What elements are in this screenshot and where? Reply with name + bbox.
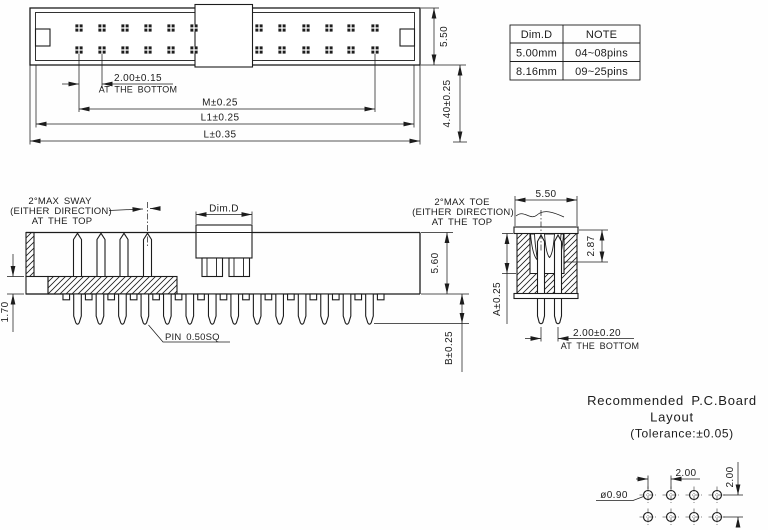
end-width-extension-lines: [515, 196, 577, 226]
side-view: Dim.D 2°MAX SWAY (EITHER DIRECTION) AT T…: [0, 196, 469, 372]
solder-tail: [186, 294, 194, 324]
top-view: 2.00±0.15 AT THE BOTTOM M±0.25 L1±0.25 L…: [30, 5, 467, 145]
solder-tail: [119, 294, 127, 324]
pin-note: PIN 0.50SQ: [165, 332, 220, 343]
side-view-key-feet: [202, 258, 250, 277]
end-pitch-extension-lines: [541, 327, 558, 342]
side-view-left-end-block: [26, 277, 48, 295]
side-view-left-wall-section: [26, 233, 34, 277]
end-view-top-cap: [514, 227, 578, 234]
side-view-top-pins: [74, 233, 152, 276]
top-view-left-slot: [36, 29, 51, 46]
dim-body-width-top: 5.50: [439, 26, 450, 47]
end-view-bottom-lip: [514, 294, 578, 299]
side-view-center-key: [196, 225, 252, 258]
pin-top: [97, 233, 105, 276]
standoff-nub: [108, 294, 115, 300]
dim-pcb-pitch-x: 2.00: [675, 468, 696, 479]
standoff-nub: [85, 294, 92, 300]
dim-l1: L1±0.25: [201, 113, 240, 124]
standoff-nub: [377, 294, 384, 300]
base-thickness-extension-lines: [7, 277, 24, 295]
dim-pin-pitch-top: 2.00±0.15: [114, 73, 162, 84]
solder-tail: [164, 294, 172, 324]
dim-end-pitch: 2.00±0.20: [573, 328, 621, 339]
end-view-pin: [555, 235, 562, 324]
dim-body-height: 5.60: [430, 252, 441, 273]
solder-tail: [141, 294, 149, 324]
dim-end-width: 5.50: [535, 189, 556, 200]
pcb-layout: Recommended P.C.Board Layout (Tolerance:…: [587, 393, 757, 526]
dim-pin-pitch-top-note: AT THE BOTTOM: [99, 85, 177, 95]
side-view-base-section: [48, 277, 177, 295]
pcb-pitch-y-extension-lines: [723, 495, 743, 517]
dim-287: 2.87: [586, 235, 597, 256]
spec-table-cell: 8.16mm: [516, 66, 557, 78]
solder-tail: [321, 294, 329, 324]
standoff-nub: [288, 294, 295, 300]
solder-tail: [96, 294, 104, 324]
standoff-nub: [175, 294, 182, 300]
standoff-nub: [310, 294, 317, 300]
pin-top: [74, 233, 82, 276]
dim-pcb-pitch-y: 2.00: [725, 466, 736, 487]
standoff-nub: [220, 294, 227, 300]
solder-tail: [253, 294, 261, 324]
side-view-standoff-nubs: [63, 294, 384, 300]
standoff-nub: [198, 294, 205, 300]
solder-tail: [231, 294, 239, 324]
dim-end-pitch-note: AT THE BOTTOM: [561, 341, 639, 351]
standoff-nub: [265, 294, 272, 300]
side-height-extension-lines: [374, 233, 469, 324]
drawing-canvas: 2.00±0.15 AT THE BOTTOM M±0.25 L1±0.25 L…: [0, 0, 768, 530]
standoff-nub: [355, 294, 362, 300]
dim-a-extension-lines: [502, 234, 516, 274]
standoff-nub: [153, 294, 160, 300]
standoff-nub: [332, 294, 339, 300]
sway-label-line3: AT THE TOP: [32, 216, 93, 227]
spec-table-header-dimd: Dim.D: [521, 29, 553, 41]
top-view-right-slot: [400, 29, 415, 46]
dim-a: A±0.25: [492, 282, 503, 316]
solder-tail: [208, 294, 216, 324]
standoff-nub: [130, 294, 137, 300]
end-view: 2°MAX TOE (EITHER DIRECTION) AT THE TOP …: [412, 189, 639, 351]
dim-d-label: Dim.D: [209, 204, 239, 215]
dim-m: M±0.25: [202, 98, 238, 109]
pcb-hole-pattern: [640, 487, 726, 526]
spec-table-cell: 09~25pins: [575, 66, 628, 78]
dim-l: L±0.35: [204, 130, 237, 141]
dim-base-thickness: 1.70: [0, 301, 11, 322]
dim-440: 4.40±0.25: [442, 79, 453, 127]
solder-tail: [343, 294, 351, 324]
pcb-pitch-x-extension-lines: [648, 476, 671, 490]
standoff-nub: [63, 294, 70, 300]
dim-hole-dia: ø0.90: [600, 490, 628, 501]
sway-leader: [109, 209, 143, 211]
pcb-title-line2: Layout: [650, 410, 694, 425]
toe-label-line3: AT THE TOP: [432, 217, 493, 228]
dim-pin-tail: B±0.25: [444, 331, 455, 365]
spec-table-cell: 04~08pins: [575, 48, 628, 60]
solder-tail: [298, 294, 306, 324]
pin-top: [120, 233, 128, 276]
spec-table: Dim.D NOTE 5.00mm 04~08pins 8.16mm 09~25…: [510, 25, 640, 80]
toe-leader-wave: [516, 212, 564, 217]
top-view-center-key: [195, 5, 253, 68]
standoff-nub: [243, 294, 250, 300]
solder-tail: [366, 294, 374, 324]
engineering-drawing-box-header: 2.00±0.15 AT THE BOTTOM M±0.25 L1±0.25 L…: [0, 0, 768, 530]
spec-table-header-note: NOTE: [586, 29, 617, 41]
end-view-body-section: [517, 234, 577, 294]
spec-table-cell: 5.00mm: [516, 48, 557, 60]
solder-tail: [276, 294, 284, 324]
pcb-title-line1: Recommended P.C.Board: [587, 393, 757, 408]
solder-tail: [74, 294, 82, 324]
pcb-title-line3: (Tolerance:±0.05): [630, 427, 734, 441]
